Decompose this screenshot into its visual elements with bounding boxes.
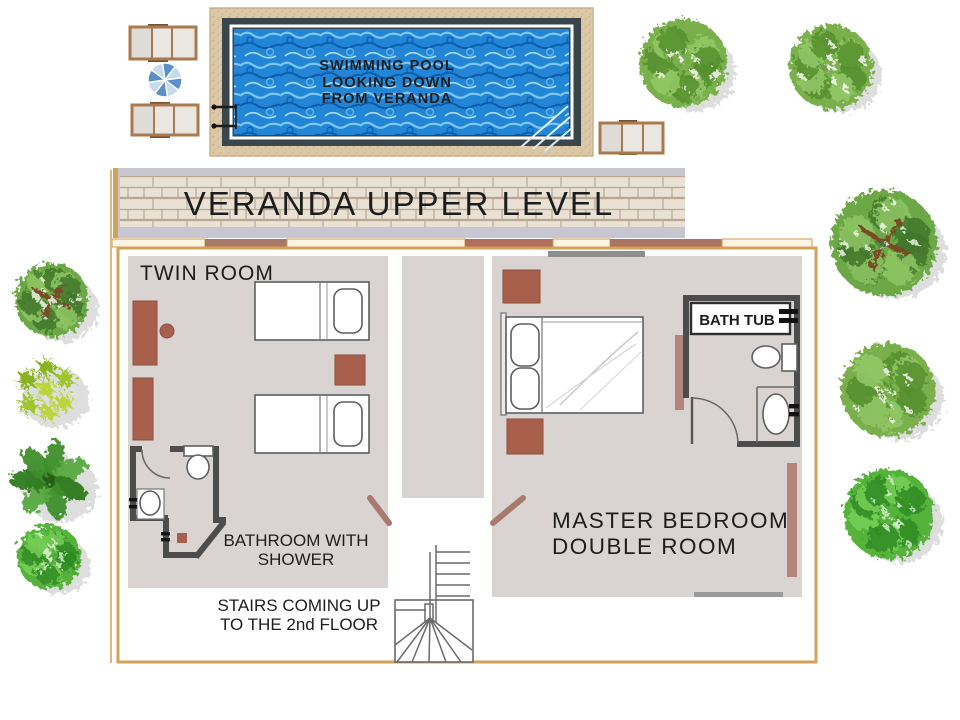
- nightstand: [507, 419, 543, 454]
- nightstand: [503, 270, 540, 303]
- wall-segment: [112, 239, 205, 247]
- pillow: [334, 289, 362, 333]
- veranda-left-border: [113, 168, 118, 238]
- twin-bed: [255, 282, 369, 340]
- twin-room-label: TWIN ROOM: [140, 262, 274, 285]
- shower-drain: [177, 533, 187, 543]
- side-table: [335, 355, 365, 385]
- shower-bathroom-label-line1: BATHROOM WITH: [223, 531, 368, 550]
- sun-lounger: [132, 102, 198, 138]
- window-segment: [205, 239, 287, 247]
- veranda-label: VERANDA UPPER LEVEL: [184, 185, 615, 222]
- faucet-icon: [789, 412, 799, 416]
- parasol-icon: [148, 63, 182, 97]
- tub-faucet-icon: [779, 318, 798, 323]
- window-segment: [610, 239, 722, 247]
- faucet-icon: [129, 505, 137, 508]
- wall-segment: [722, 239, 812, 247]
- pillow: [511, 324, 539, 366]
- pool-label-line3: FROM VERANDA: [322, 91, 452, 107]
- stairs-label-line1: STAIRS COMING UP: [217, 596, 380, 615]
- faucet-icon: [129, 498, 137, 501]
- faucet-icon: [789, 404, 799, 408]
- veranda: VERANDA UPPER LEVEL: [113, 168, 685, 238]
- wall-segment: [287, 239, 465, 247]
- bathtub-label: BATH TUB: [699, 312, 775, 329]
- pillow: [511, 368, 539, 409]
- pool-label-line2: LOOKING DOWN: [322, 75, 452, 91]
- swimming-pool: SWIMMING POOL LOOKING DOWN FROM VERANDA: [210, 8, 593, 156]
- wardrobe: [133, 301, 157, 365]
- wall-accent-bar: [787, 463, 797, 577]
- tub-faucet-icon: [779, 309, 798, 314]
- sink-icon: [140, 491, 160, 515]
- upper-wall-band: [112, 239, 812, 247]
- wall-segment: [553, 239, 610, 247]
- sun-lounger: [130, 24, 196, 62]
- shower-head-icon: [161, 532, 170, 535]
- dresser: [133, 378, 153, 440]
- hall-wall-block: [402, 256, 484, 498]
- window-segment: [465, 239, 553, 247]
- shower-head-icon: [161, 538, 170, 541]
- pool-label-line1: SWIMMING POOL: [319, 58, 454, 74]
- sink-icon: [763, 394, 789, 434]
- master-bedroom-label-line1: MASTER BEDROOM: [552, 508, 789, 533]
- master-bottom-wall-accent: [694, 592, 783, 597]
- double-bed: [501, 313, 643, 415]
- twin-bed: [255, 395, 369, 453]
- toilet-icon: [752, 346, 780, 368]
- sun-lounger: [600, 120, 663, 155]
- stairs-label-line2: TO THE 2nd FLOOR: [220, 615, 378, 634]
- pillow: [334, 402, 362, 446]
- toilet-icon: [187, 455, 209, 479]
- master-bedroom-label-line2: DOUBLE ROOM: [552, 534, 737, 559]
- floor-plan-canvas: SWIMMING POOL LOOKING DOWN FROM VERANDA …: [0, 0, 960, 720]
- shower-bathroom-label-line2: SHOWER: [258, 550, 335, 569]
- master-top-wall-accent: [548, 251, 645, 257]
- toilet-tank: [782, 344, 797, 371]
- wall-accent-bar: [675, 335, 684, 410]
- stool: [160, 324, 174, 338]
